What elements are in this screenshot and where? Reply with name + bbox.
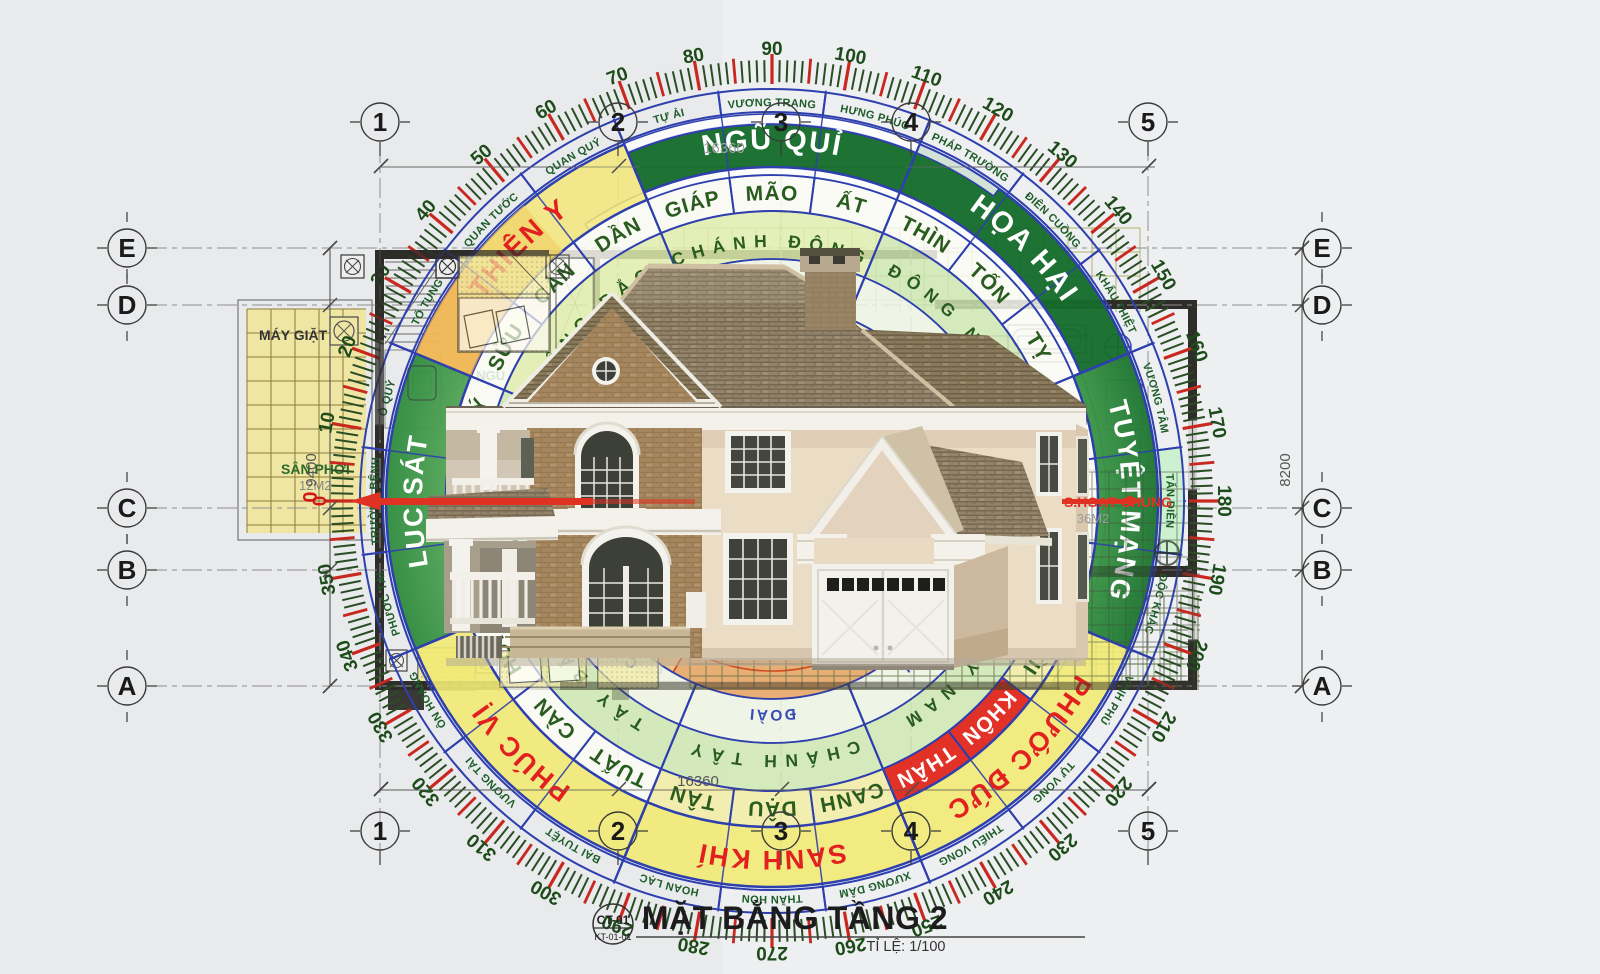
svg-text:S.HOẠT CHUNG: S.HOẠT CHUNG [1064, 494, 1172, 510]
svg-text:1: 1 [373, 107, 387, 137]
svg-text:B: B [1313, 555, 1332, 585]
svg-text:10: 10 [315, 410, 339, 434]
svg-text:90: 90 [761, 39, 782, 60]
svg-text:ĐOÀI: ĐOÀI [747, 705, 796, 723]
svg-text:D: D [118, 290, 137, 320]
svg-text:2: 2 [611, 816, 625, 846]
svg-text:0: 0 [300, 491, 322, 502]
svg-text:DẬU: DẬU [747, 796, 797, 821]
svg-text:B: B [118, 555, 137, 585]
svg-text:4: 4 [904, 816, 919, 846]
svg-text:D: D [1313, 290, 1332, 320]
svg-text:5: 5 [1141, 107, 1155, 137]
svg-text:MÃO: MÃO [745, 182, 799, 206]
svg-text:16360: 16360 [677, 773, 719, 790]
svg-text:KT-01-01: KT-01-01 [594, 932, 631, 942]
svg-text:CT-01: CT-01 [597, 913, 630, 927]
svg-text:3: 3 [774, 107, 788, 137]
svg-text:3: 3 [774, 816, 788, 846]
svg-text:A: A [1313, 671, 1332, 701]
svg-text:MẶT BẰNG TẦNG 2: MẶT BẰNG TẦNG 2 [642, 900, 948, 936]
svg-text:36M2: 36M2 [1077, 511, 1110, 526]
svg-text:80: 80 [681, 44, 705, 68]
svg-text:8200: 8200 [1277, 453, 1294, 486]
svg-text:4: 4 [904, 107, 919, 137]
svg-text:A: A [118, 671, 137, 701]
svg-text:180: 180 [1213, 485, 1234, 517]
svg-text:2: 2 [611, 107, 625, 137]
svg-text:E: E [118, 233, 135, 263]
svg-text:1: 1 [373, 816, 387, 846]
svg-text:TỈ LỆ: 1/100: TỈ LỆ: 1/100 [867, 938, 946, 955]
svg-text:16360: 16360 [703, 140, 745, 157]
svg-text:9400: 9400 [303, 453, 320, 486]
svg-text:270: 270 [756, 942, 788, 963]
svg-text:C: C [1313, 493, 1332, 523]
svg-text:MÁY GIẶT: MÁY GIẶT [259, 327, 328, 343]
svg-text:C: C [118, 493, 137, 523]
svg-text:5: 5 [1141, 816, 1155, 846]
svg-text:E: E [1313, 233, 1330, 263]
